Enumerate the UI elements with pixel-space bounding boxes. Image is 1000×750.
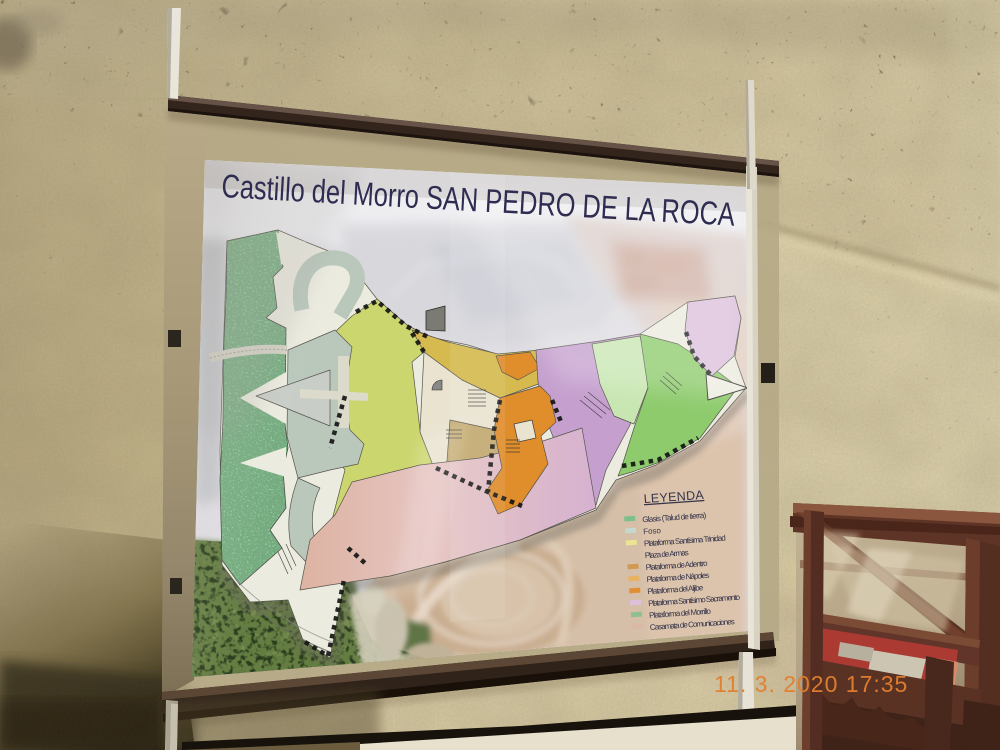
svg-text:11. 3. 2020 17:35: 11. 3. 2020 17:35 bbox=[714, 671, 908, 697]
svg-text:Foso: Foso bbox=[643, 526, 662, 536]
